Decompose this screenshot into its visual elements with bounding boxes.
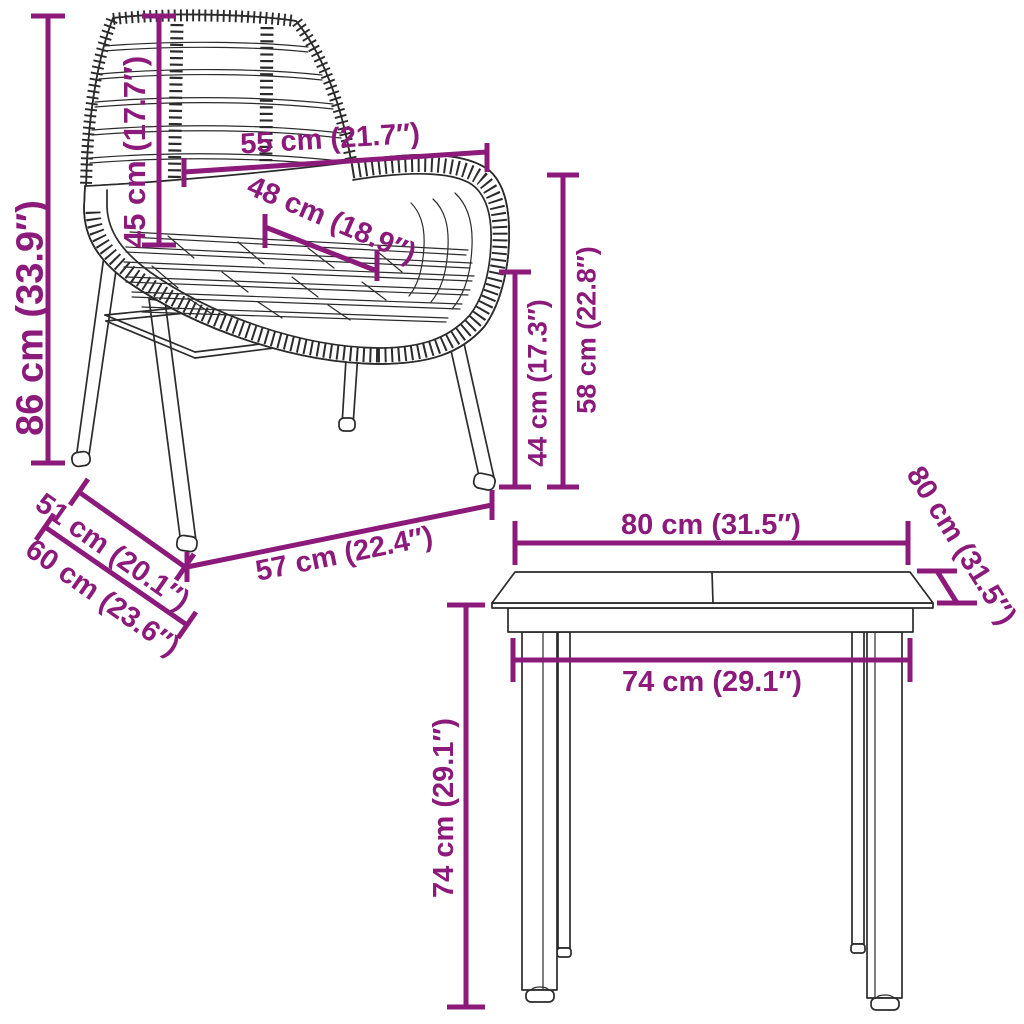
dim-table-inner-width: 74 cm (29.1″): [513, 638, 910, 698]
table-leg-front-right: [867, 632, 902, 998]
dim-chair-seat-height: 44 cm (17.3″): [499, 272, 552, 487]
dim-chair-armrest-height: 58 cm (22.8″): [547, 175, 601, 487]
dim-chair-backrest-height-label: 45 cm (17.7″): [117, 56, 152, 248]
table-foot: [871, 998, 899, 1010]
dim-table-height: 74 cm (29.1″): [428, 605, 485, 1007]
table-leg-back-left: [558, 632, 570, 948]
dim-chair-height: 86 cm (33.9″): [9, 16, 65, 463]
dim-chair-seat-height-label: 44 cm (17.3″): [522, 299, 552, 467]
table-foot: [557, 948, 571, 957]
table-foot: [851, 944, 865, 953]
chair-foot: [339, 418, 355, 431]
chair-foot: [71, 451, 91, 467]
dim-chair-height-label: 86 cm (33.9″): [9, 200, 51, 436]
table-apron: [508, 608, 913, 632]
dim-table-height-label: 74 cm (29.1″): [428, 718, 460, 898]
dim-chair-base-width: 57 cm (22.4″): [187, 490, 492, 588]
dim-table-inner-width-label: 74 cm (29.1″): [622, 666, 802, 698]
dim-table-top-width-label: 80 cm (31.5″): [621, 509, 801, 541]
dim-table-top-width: 80 cm (31.5″): [515, 509, 908, 565]
table-drawing: [492, 572, 933, 1010]
table-leg-back-right: [852, 632, 864, 944]
chair-leg-back-left: [76, 256, 118, 462]
dimension-diagram: 86 cm (33.9″) 45 cm (17.7″) 55 cm (21.7″…: [0, 0, 1024, 1024]
chair-foot: [176, 535, 198, 553]
dim-chair-armrest-height-label: 58 cm (22.8″): [571, 246, 601, 414]
table-top-split: [712, 572, 713, 603]
table-top: [492, 572, 933, 608]
table-leg-front-left: [522, 632, 557, 990]
dim-chair-base-width-label: 57 cm (22.4″): [253, 521, 436, 588]
table-foot: [526, 990, 554, 1002]
